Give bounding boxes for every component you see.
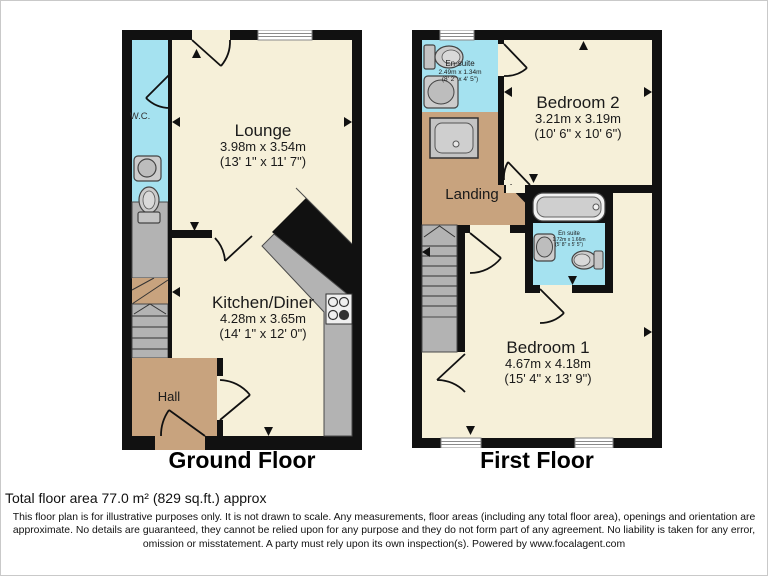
kitchen-label: Kitchen/Diner 4.28m x 3.65m (14' 1" x 12… [168,293,358,341]
lounge-kitchen-wall-stub [172,230,212,238]
ensuite2-imperial: (5' 8" x 5' 5") [535,243,603,249]
wc-sink [134,156,161,181]
wc-label: W.C. [118,112,162,123]
lounge-window [258,30,312,40]
lounge-metric: 3.98m x 3.54m [168,140,358,155]
landing-label: Landing [430,187,514,204]
ensuite1-metric: 2.49m x 1.34m [416,69,504,76]
kitchen-name: Kitchen/Diner [168,293,358,312]
bedroom2-imperial: (10' 6" x 10' 6") [490,127,666,142]
kitchen-metric: 4.28m x 3.65m [168,312,358,327]
kitchen-imperial: (14' 1" x 12' 0") [168,327,358,342]
lounge-imperial: (13' 1" x 11' 7") [168,155,358,170]
ensuite1-window [440,30,474,40]
ensuite2-door-opening [540,285,572,293]
wc-toilet [138,187,160,223]
bedroom1-imperial: (15' 4" x 13' 9") [460,372,636,387]
hall-label: Hall [138,390,200,405]
floorplan-page: W.C. Lounge 3.98m x 3.54m (13' 1" x 11' … [0,0,768,576]
ground-floor-plan [122,30,362,450]
ensuite1-label: En-suite 2.49m x 1.34m (8' 2" x 4' 5") [416,60,504,83]
lounge-label: Lounge 3.98m x 3.54m (13' 1" x 11' 7") [168,121,358,169]
ensuite2-label: En suite 1.72m x 1.66m (5' 8" x 5' 5") [535,231,603,249]
bedroom1-metric: 4.67m x 4.18m [460,357,636,372]
ground-floor-title: Ground Floor [122,447,362,474]
ensuite1-imperial: (8' 2" x 4' 5") [416,76,504,83]
total-floor-area: Total floor area 77.0 m² (829 sq.ft.) ap… [5,490,266,506]
bedroom1-label: Bedroom 1 4.67m x 4.18m (15' 4" x 13' 9"… [460,338,636,386]
bedroom2-metric: 3.21m x 3.19m [490,112,666,127]
bath [533,193,605,221]
first-closet [422,317,457,352]
lounge-top-door-opening [192,30,230,40]
ground-floor-drawing [122,30,362,450]
bedroom1-name: Bedroom 1 [460,338,636,357]
lounge-name: Lounge [168,121,358,140]
ensuite2-toilet [572,251,603,269]
first-floor-title: First Floor [412,447,662,474]
disclaimer-text: This floor plan is for illustrative purp… [0,511,768,551]
bedroom2-label: Bedroom 2 3.21m x 3.19m (10' 6" x 10' 6"… [490,93,666,141]
first-stairs [422,225,457,317]
shower [430,118,478,158]
bedroom2-name: Bedroom 2 [490,93,666,112]
ensuite1-name: En-suite [416,60,504,69]
